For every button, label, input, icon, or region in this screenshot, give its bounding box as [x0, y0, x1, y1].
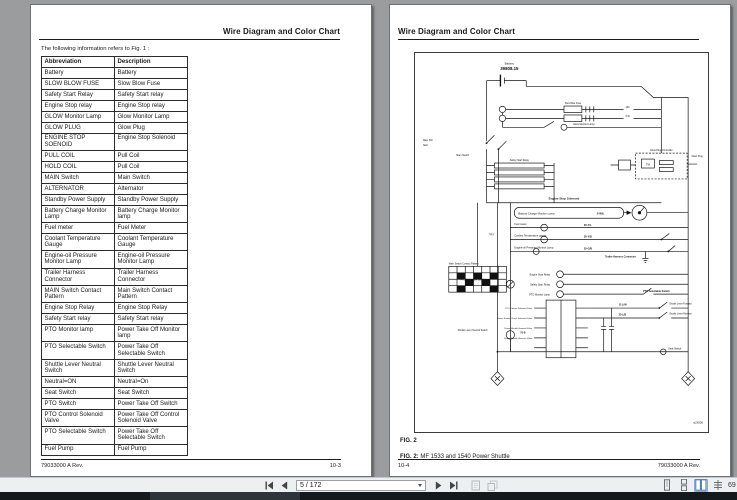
- bottom-bar-segment: [150, 492, 300, 500]
- table-row: Coolant Temperature GaugeCoolant Tempera…: [42, 234, 188, 251]
- diagram-label: Power Shuttle Check Solenoid Valve: [497, 317, 533, 320]
- ground-symbol-left: [491, 372, 504, 386]
- column-header-abbreviation: Abbreviation: [42, 57, 115, 68]
- table-row: BatteryBattery: [42, 67, 188, 78]
- table-cell: Engine-oil Pressure Monitor Lamp: [115, 251, 188, 268]
- table-cell: Fuel Pump: [115, 444, 188, 455]
- table-cell: Safety Start Relay: [42, 89, 115, 100]
- viewer-toolbar: 5 / 172 69: [0, 477, 737, 492]
- page-title: Wire Diagram and Color Chart: [398, 27, 699, 36]
- last-page-button[interactable]: [447, 479, 459, 491]
- document-page-left: Wire Diagram and Color Chart The followi…: [30, 4, 372, 477]
- clipboard-icon: [487, 480, 498, 491]
- diagram-label: Shuttle Lever Reverse: [669, 313, 692, 316]
- table-cell: Power Take Off Selectable Switch: [115, 427, 188, 444]
- table-cell: Standby Power Supply: [42, 194, 115, 205]
- page-number-combobox[interactable]: 5 / 172: [296, 480, 426, 491]
- table-row: ENGINE STOP SOENOIDEngine Stop Solenoid: [42, 133, 188, 150]
- table-cell: Pull Coil: [115, 150, 188, 161]
- first-page-icon: [265, 481, 274, 490]
- view-history-group: [470, 479, 498, 491]
- table-row: Trailer Harness ConnectorTrailer Harness…: [42, 268, 188, 285]
- diagram-label: Main SW: [423, 139, 433, 142]
- page-navigation: 5 / 172: [263, 479, 498, 491]
- table-row: MAIN SwitchMain Switch: [42, 172, 188, 183]
- continuous-facing-view-button[interactable]: [711, 479, 725, 492]
- alternator-gauge: [632, 205, 688, 220]
- table-cell: GLOW PLUG: [42, 122, 115, 133]
- table-cell: Battery: [42, 67, 115, 78]
- table-cell: Seat Switch: [42, 388, 115, 399]
- diagram-label: Safety Start Relay: [510, 159, 530, 162]
- diagram-label: 15A: [626, 106, 631, 109]
- table-cell: Glow Plug: [115, 122, 188, 133]
- footer-doc-number: 79033000 A Rev.: [658, 463, 700, 469]
- table-cell: Power Take Off Selectable Switch: [115, 342, 188, 359]
- table-cell: Shuttle Lever Neutral Switch: [42, 359, 115, 376]
- diagram-label: Main Switch: [456, 154, 469, 157]
- diagram-label: 5-W: [626, 116, 631, 118]
- diagram-label: PTO Monitor Lamp: [529, 294, 550, 297]
- table-cell: Shuttle Lever Neutral Switch: [115, 359, 188, 376]
- wiring-diagram-figure: Battery 39808.15 Slow Blow Fuse 15A 5-W: [414, 52, 709, 433]
- column-header-description: Description: [115, 57, 188, 68]
- table-row: PULL COILPull Coil: [42, 150, 188, 161]
- table-cell: Main Switch Contact Pattern: [115, 285, 188, 302]
- charge-monitor-row: Battery Charge Monitor Lamp 5-W/L: [514, 207, 631, 218]
- single-page-view-icon: [661, 479, 673, 491]
- figure-label: FIG. 2: [400, 438, 417, 444]
- table-row: Fuel PumpFuel Pump: [42, 444, 188, 455]
- clipboard-button[interactable]: [486, 479, 498, 491]
- table-row: Engine Stop relayEngine Stop relay: [42, 100, 188, 111]
- table-row: Seat SwitchSeat Switch: [42, 388, 188, 399]
- table-row: Safety Start relaySafety Start relay: [42, 314, 188, 325]
- table-cell: Fuel Meter: [115, 223, 188, 234]
- page-footer: 10-4 79033000 A Rev.: [398, 459, 700, 469]
- table-cell: Engine-oil Pressure Monitor Lamp: [42, 251, 115, 268]
- diagram-label: Glow Monitor Lamp: [573, 123, 595, 126]
- diagram-label: TM: [646, 163, 651, 167]
- table-row: Shuttle Lever Neutral SwitchShuttle Leve…: [42, 359, 188, 376]
- previous-page-icon: [281, 481, 288, 490]
- header-rule: [39, 39, 340, 40]
- table-cell: Engine Stop Relay: [115, 303, 188, 314]
- table-cell: Seat Switch: [115, 388, 188, 399]
- monitor-lamp-rows: Fuel meter 20-Y/L Coolant Temperature ga…: [510, 222, 688, 263]
- relay-lamp-rows: Engine Stop Relay Safety Start Relay PTO…: [529, 271, 688, 298]
- diagram-label: Shuttle Lever Forward: [669, 303, 692, 306]
- table-cell: Engine Stop Solenoid: [115, 133, 188, 150]
- facing-view-icon: [695, 479, 707, 491]
- table-row: PTO Selectable SwitchPower Take Off Sele…: [42, 342, 188, 359]
- ground-symbol-right: [682, 372, 695, 386]
- table-row: PTO Monitor lampPower Take Off Monitor l…: [42, 325, 188, 342]
- zoom-level-value[interactable]: 69: [728, 482, 737, 489]
- intro-text: The following information refers to Fig.…: [41, 46, 340, 52]
- header-rule: [398, 39, 699, 40]
- abbreviation-table: Abbreviation Description BatteryBatteryS…: [41, 56, 188, 456]
- next-page-button[interactable]: [432, 479, 444, 491]
- table-row: ALTERNATORAlternator: [42, 183, 188, 194]
- table-cell: Standby Power Supply: [115, 194, 188, 205]
- table-cell: HOLD COIL: [42, 161, 115, 172]
- diagram-label: Engine Stop Solenoid: [549, 196, 580, 200]
- table-row: Battery Charge Monitor LampBattery Charg…: [42, 205, 188, 222]
- table-cell: Engine Stop relay: [115, 100, 188, 111]
- table-row: Engine-oil Pressure Monitor LampEngine-o…: [42, 251, 188, 268]
- table-cell: ALTERNATOR: [42, 183, 115, 194]
- table-row: Safety Start RelaySafety Start relay: [42, 89, 188, 100]
- diagram-label: 11-L/W: [619, 304, 628, 307]
- table-row: Engine Stop RelayEngine Stop Relay: [42, 303, 188, 314]
- table-cell: PTO Selectable Switch: [42, 342, 115, 359]
- footer-doc-number: 79033000 A Rev.: [41, 463, 83, 469]
- page-header: Wire Diagram and Color Chart: [398, 27, 699, 36]
- table-cell: MAIN Switch Contact Pattern: [42, 285, 115, 302]
- diagram-label: 5-W/L: [597, 212, 605, 216]
- table-cell: Pull Coil: [115, 161, 188, 172]
- footer-page-number: 10-3: [330, 463, 341, 469]
- table-cell: Coolant Temperature Gauge: [115, 234, 188, 251]
- table-cell: Power Take Off Switch: [115, 399, 188, 410]
- table-header-row: Abbreviation Description: [42, 57, 188, 68]
- diagram-label: Glow Plug Controller: [650, 149, 673, 152]
- table-row: HOLD COILPull Coil: [42, 161, 188, 172]
- diagram-label: PTO Selectable Switch: [643, 290, 670, 293]
- diagram-label: 30-Y/B: [584, 235, 592, 239]
- table-cell: Neutral=ON: [42, 377, 115, 388]
- first-page-button[interactable]: [263, 479, 275, 491]
- table-row: GLOW PLUGGlow Plug: [42, 122, 188, 133]
- table-row: SLOW BLOW FUSESlow Blow Fuse: [42, 78, 188, 89]
- chevron-down-icon: [418, 484, 422, 487]
- glow-monitor-row: Glow Monitor Lamp: [502, 121, 661, 130]
- table-cell: Neutral=On: [115, 377, 188, 388]
- diagram-label: 20-Y/L: [584, 223, 592, 227]
- table-row: Standby Power SupplyStandby Power Supply: [42, 194, 188, 205]
- table-cell: PULL COIL: [42, 150, 115, 161]
- last-page-icon: [449, 481, 458, 490]
- snapshot-icon: [471, 480, 482, 491]
- table-cell: PTO Monitor lamp: [42, 325, 115, 342]
- shuttle-lever-rows: 11-L/W Shuttle Lever Forward 23-L/B Shut…: [588, 302, 693, 352]
- table-cell: PTO Selectable Switch: [42, 427, 115, 444]
- snapshot-button[interactable]: [470, 479, 482, 491]
- table-cell: Safety Start relay: [42, 314, 115, 325]
- diagram-label: Safety Start Relay: [530, 284, 551, 287]
- diagram-label: Fuel meter: [514, 222, 526, 226]
- table-cell: Fuel meter: [42, 223, 115, 234]
- continuous-view-icon: [678, 479, 690, 491]
- previous-page-button[interactable]: [278, 479, 290, 491]
- table-row: Fuel meterFuel Meter: [42, 223, 188, 234]
- page-title: Wire Diagram and Color Chart: [41, 27, 340, 36]
- diagram-label: Trailer Harness Connector: [605, 255, 636, 258]
- abbreviation-table-body: BatteryBatterySLOW BLOW FUSESlow Blow Fu…: [42, 67, 188, 455]
- continuous-view-button[interactable]: [677, 479, 691, 492]
- drawing-code: aJ3000: [693, 420, 703, 424]
- top-bus-wire: [526, 87, 688, 372]
- bottom-bus: Seat Switch: [497, 347, 689, 354]
- diagram-label: Glow Plug: [691, 155, 703, 158]
- table-cell: Battery: [115, 67, 188, 78]
- continuous-facing-view-icon: [712, 479, 724, 491]
- footer-page-number: 10-4: [398, 463, 409, 469]
- diagram-label: 35-G/B: [584, 247, 592, 251]
- table-cell: Alternator: [115, 183, 188, 194]
- table-cell: Glow Monitor Lamp: [115, 111, 188, 122]
- table-cell: Coolant Temperature Gauge: [42, 234, 115, 251]
- table-row: PTO Control Solenoid ValvePower Take Off…: [42, 409, 188, 426]
- table-cell: Power Take Off Control Solenoid Valve: [115, 409, 188, 426]
- table-cell: Fuel Pump: [42, 444, 115, 455]
- diagram-label: Battery: [505, 62, 515, 66]
- table-cell: Safety Start relay: [115, 89, 188, 100]
- table-row: GLOW Monitor LampGlow Monitor Lamp: [42, 111, 188, 122]
- page-header: Wire Diagram and Color Chart: [41, 27, 340, 36]
- diagram-label: PTO Control Solenoid Valve: [505, 307, 533, 310]
- table-row: PTO SwitchPower Take Off Switch: [42, 399, 188, 410]
- diagram-label: 7-R/Y: [488, 234, 494, 237]
- bottom-bar: [0, 492, 737, 500]
- document-page-right: Wire Diagram and Color Chart Battery 398…: [389, 4, 731, 477]
- table-cell: Engine Stop Relay: [42, 303, 115, 314]
- wiring-diagram-svg: Battery 39808.15 Slow Blow Fuse 15A 5-W: [415, 53, 708, 432]
- single-page-view-button[interactable]: [660, 479, 674, 492]
- page-footer: 79033000 A Rev. 10-3: [41, 459, 341, 469]
- table-cell: Slow Blow Fuse: [115, 78, 188, 89]
- diagram-label: Slow Blow Fuse: [565, 103, 582, 105]
- table-cell: Trailer Harness Connector: [42, 268, 115, 285]
- diagram-label: Battery Charge Monitor Lamp: [518, 211, 555, 215]
- page-number-value: 5 / 172: [297, 482, 418, 489]
- table-cell: Trailer Harness Connector: [115, 268, 188, 285]
- facing-view-button[interactable]: [694, 479, 708, 492]
- table-cell: PTO Switch: [42, 399, 115, 410]
- diagram-label: Main Switch Contact Pattern: [449, 262, 480, 265]
- table-cell: Engine Stop relay: [42, 100, 115, 111]
- glow-plug-controller: Glow Plug Controller TM Glow Plug: [611, 149, 704, 179]
- table-cell: Safety Start relay: [115, 314, 188, 325]
- table-cell: MAIN Switch: [42, 172, 115, 183]
- table-cell: SLOW BLOW FUSE: [42, 78, 115, 89]
- diagram-label: 23-L/B: [619, 314, 627, 317]
- table-cell: Battery Charge Monitor Lamp: [42, 205, 115, 222]
- table-cell: ENGINE STOP SOENOID: [42, 133, 115, 150]
- shuttle-neutral-switch: Shuttle Lever Neutral Switch 70-B: [458, 329, 526, 352]
- diagram-label: Start: [423, 144, 428, 147]
- table-cell: PTO Control Solenoid Valve: [42, 409, 115, 426]
- table-cell: Main Switch: [115, 172, 188, 183]
- diagram-label: PTO Selectable Switch: [460, 279, 485, 282]
- table-row: PTO Selectable SwitchPower Take Off Sele…: [42, 427, 188, 444]
- fuse-stack: Safety Start Relay: [487, 159, 555, 203]
- diagram-label: Seat Switch: [668, 347, 682, 350]
- next-page-icon: [435, 481, 442, 490]
- table-cell: Battery Charge Monitor lamp: [115, 205, 188, 222]
- page-view-modes: 69: [660, 479, 737, 492]
- diagram-label: Engine Stop Relay: [530, 274, 551, 277]
- table-row: MAIN Switch Contact PatternMain Switch C…: [42, 285, 188, 302]
- table-cell: GLOW Monitor Lamp: [42, 111, 115, 122]
- diagram-label: Shuttle Lever Neutral Switch: [458, 329, 489, 332]
- diagram-label: 70-B: [520, 331, 525, 334]
- table-row: Neutral=ONNeutral=On: [42, 377, 188, 388]
- battery-symbol: Battery 39808.15: [487, 62, 527, 94]
- diagram-label: 39808.15: [500, 66, 519, 71]
- table-cell: Power Take Off Monitor lamp: [115, 325, 188, 342]
- diagram-label: Power Shuttle Forward Valve: [504, 327, 533, 330]
